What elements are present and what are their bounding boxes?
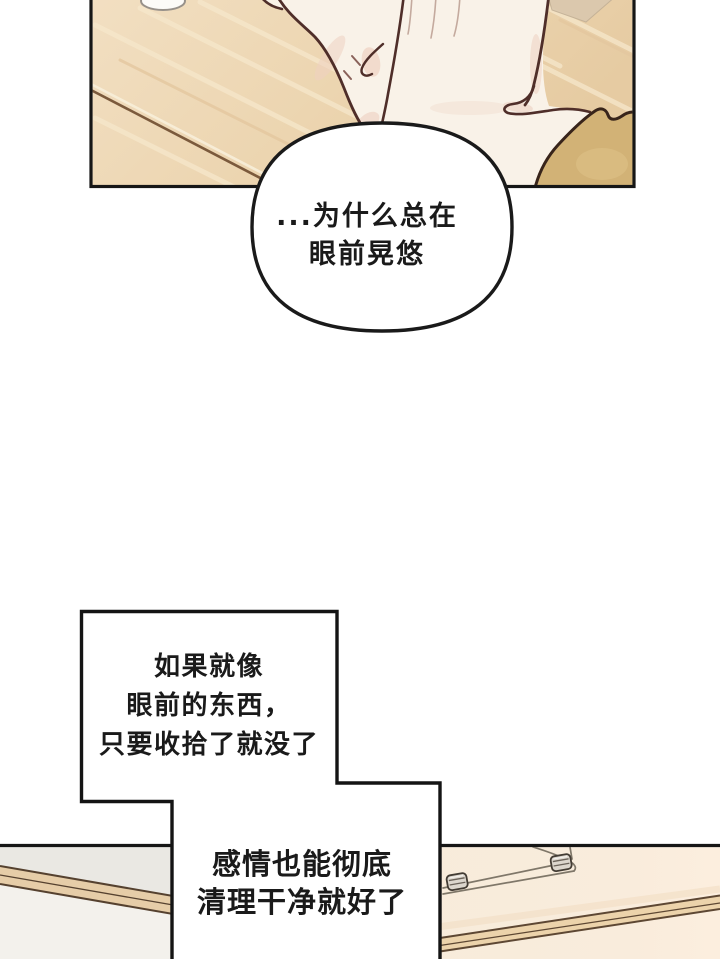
white-dish	[141, 0, 185, 10]
comic-page: ...为什么总在 眼前晃悠 如果就像 眼前的东西， 只要收拾了就没了 感情也能彻…	[0, 0, 720, 959]
sleeve-highlight	[576, 148, 628, 180]
comic-art	[0, 0, 720, 959]
glass-clamp-right	[550, 854, 572, 872]
speech-bubble	[252, 123, 512, 331]
glass-clamp-left	[446, 873, 468, 891]
